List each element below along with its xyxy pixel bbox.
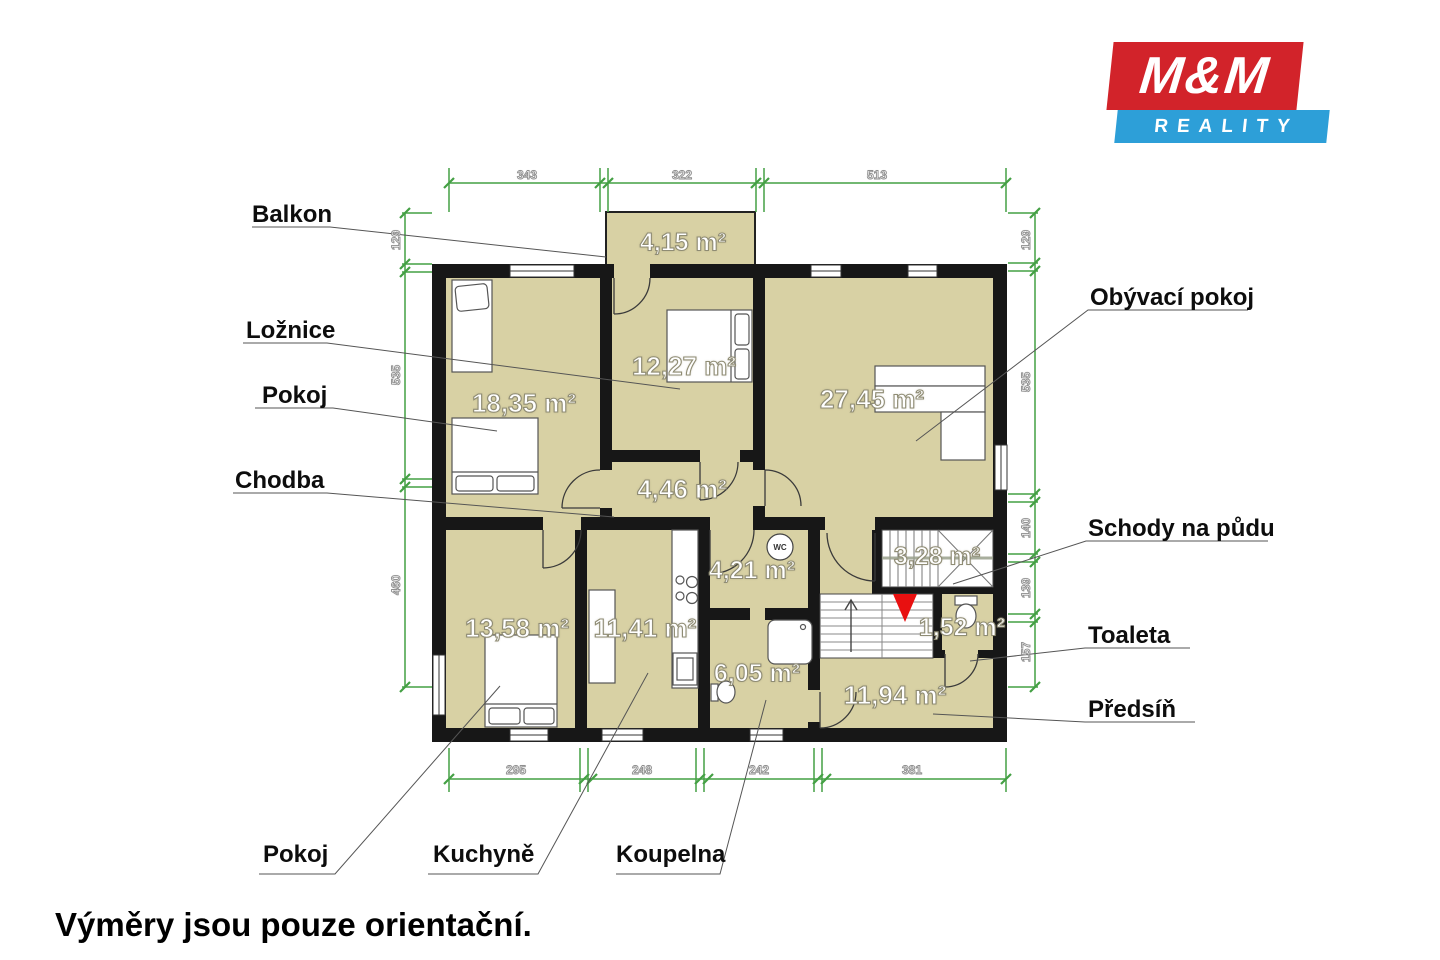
dim-bottom-4: 381: [902, 764, 922, 776]
dim-right-3: 140: [1020, 518, 1032, 538]
room-label-toaleta: Toaleta: [1088, 624, 1170, 648]
svg-text:WC: WC: [773, 543, 787, 552]
dim-right-1: 129: [1020, 230, 1032, 250]
room-label-predsin: Předsíň: [1088, 698, 1176, 722]
room-label-chodba: Chodba: [235, 469, 324, 493]
room-label-pokoj-bottom: Pokoj: [263, 843, 328, 867]
disclaimer-note: Výměry jsou pouze orientační.: [55, 906, 532, 944]
area-balkon: 4,15 m²: [640, 231, 726, 256]
room-label-balkon: Balkon: [252, 203, 332, 227]
area-pokoj-left: 18,35 m²: [472, 390, 576, 416]
area-pokoj-bottom: 13,58 m²: [465, 615, 569, 641]
dim-left-1: 129: [390, 230, 402, 250]
room-label-schody-na-pudu: Schody na půdu: [1088, 517, 1275, 541]
area-chodba: 4,46 m²: [637, 476, 727, 502]
area-loznice: 12,27 m²: [632, 353, 736, 379]
dim-left-2: 535: [390, 365, 402, 385]
room-label-koupelna: Koupelna: [616, 843, 725, 867]
area-koupelna: 6,05 m²: [714, 662, 800, 687]
dim-top-1: 343: [517, 169, 537, 181]
area-wc-room: 4,21 m²: [709, 559, 795, 584]
logo-mm-text: M&M: [1137, 46, 1273, 106]
room-label-obyvaci-pokoj: Obývací pokoj: [1090, 286, 1254, 310]
room-label-pokoj-left: Pokoj: [262, 384, 327, 408]
area-predsin: 11,94 m²: [844, 682, 947, 708]
area-toaleta: 1,52 m²: [919, 616, 1005, 641]
dim-right-5: 157: [1020, 642, 1032, 662]
logo-reality-block: REALITY: [1114, 110, 1329, 143]
dim-bottom-1: 295: [506, 764, 526, 776]
mm-reality-logo: M&M REALITY: [1108, 40, 1328, 145]
dim-left-3: 460: [390, 575, 402, 595]
area-kuchyne: 11,41 m²: [594, 615, 697, 641]
room-label-kuchyne: Kuchyně: [433, 843, 534, 867]
dim-top-2: 322: [672, 169, 692, 181]
dim-bottom-3: 242: [749, 764, 769, 776]
dim-bottom-2: 248: [632, 764, 652, 776]
floor-plan-page: WC: [0, 0, 1440, 960]
logo-reality-text: REALITY: [1144, 116, 1300, 138]
dim-right-2: 535: [1020, 372, 1032, 392]
logo-mm-block: M&M: [1106, 42, 1303, 110]
main-staircase: [820, 594, 933, 658]
area-schody: 3,28 m²: [894, 545, 980, 570]
dim-right-4: 139: [1020, 578, 1032, 598]
room-label-loznice: Ložnice: [246, 319, 335, 343]
dim-top-3: 513: [867, 169, 887, 181]
area-obyvaci-pokoj: 27,45 m²: [820, 386, 924, 412]
